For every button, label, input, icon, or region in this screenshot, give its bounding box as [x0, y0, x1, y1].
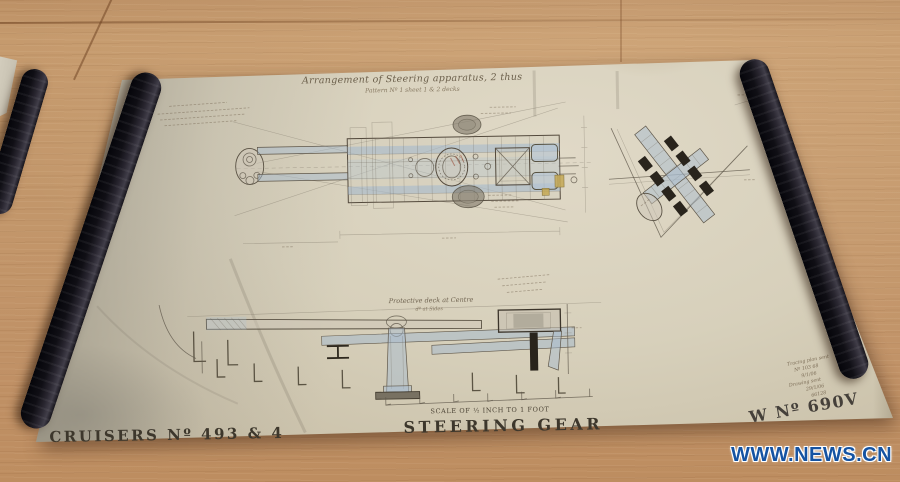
tiller-arm-lower	[258, 173, 348, 182]
scale-label: SCALE OF ½ INCH TO 1 FOOT	[430, 405, 549, 415]
cylinder-block	[532, 172, 558, 189]
tiller-arm-upper	[257, 146, 347, 155]
protective-deck-label: Protective deck at Centre	[388, 296, 474, 305]
drawing-number-label: W Nº 690V	[747, 389, 861, 427]
elevation-view: Protective deck at Centre dº at Sides	[159, 274, 603, 403]
paper-crease	[230, 258, 305, 434]
news-watermark: WWW.NEWS.CN	[731, 444, 899, 467]
main-gear	[435, 148, 468, 187]
ship-name-label: CRUISERS Nº 493 & 4	[49, 424, 284, 446]
plan-view	[233, 102, 592, 248]
drawing-title: Arrangement of Steering apparatus, 2 thu…	[301, 72, 523, 87]
drawing-number-label-group: W Nº 690V	[747, 389, 861, 427]
photo-scene: Arrangement of Steering apparatus, 2 thu…	[0, 0, 900, 482]
section-view	[599, 95, 757, 252]
i-beam-section	[327, 346, 349, 358]
paper-crease	[617, 71, 618, 109]
cylinder-block	[531, 144, 557, 161]
handwritten-note-elevation	[498, 275, 551, 293]
drawing-title-label: STEERING GEAR	[403, 414, 603, 436]
paper-crease	[534, 71, 535, 117]
handwritten-note-topleft	[157, 101, 250, 126]
tiller-arm-elevation	[206, 314, 481, 333]
pedestal-column	[386, 328, 409, 392]
drawing-subtitle: Pattern Nº 1 sheet 1 & 2 decks	[364, 86, 460, 95]
protective-deck-label-2: dº at Sides	[415, 306, 443, 312]
pedestal-base	[376, 392, 420, 400]
